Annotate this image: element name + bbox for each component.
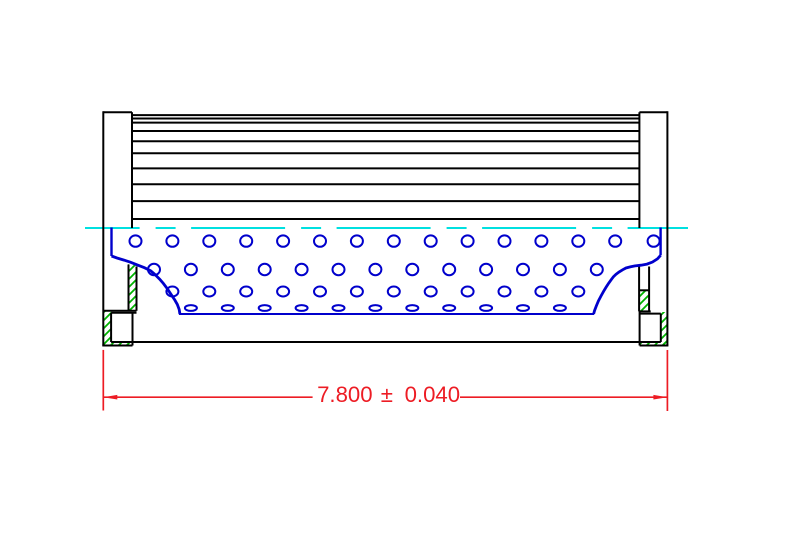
svg-text:±: ± xyxy=(381,382,393,407)
svg-text:0.040: 0.040 xyxy=(405,382,461,407)
svg-text:7.800: 7.800 xyxy=(317,382,373,407)
